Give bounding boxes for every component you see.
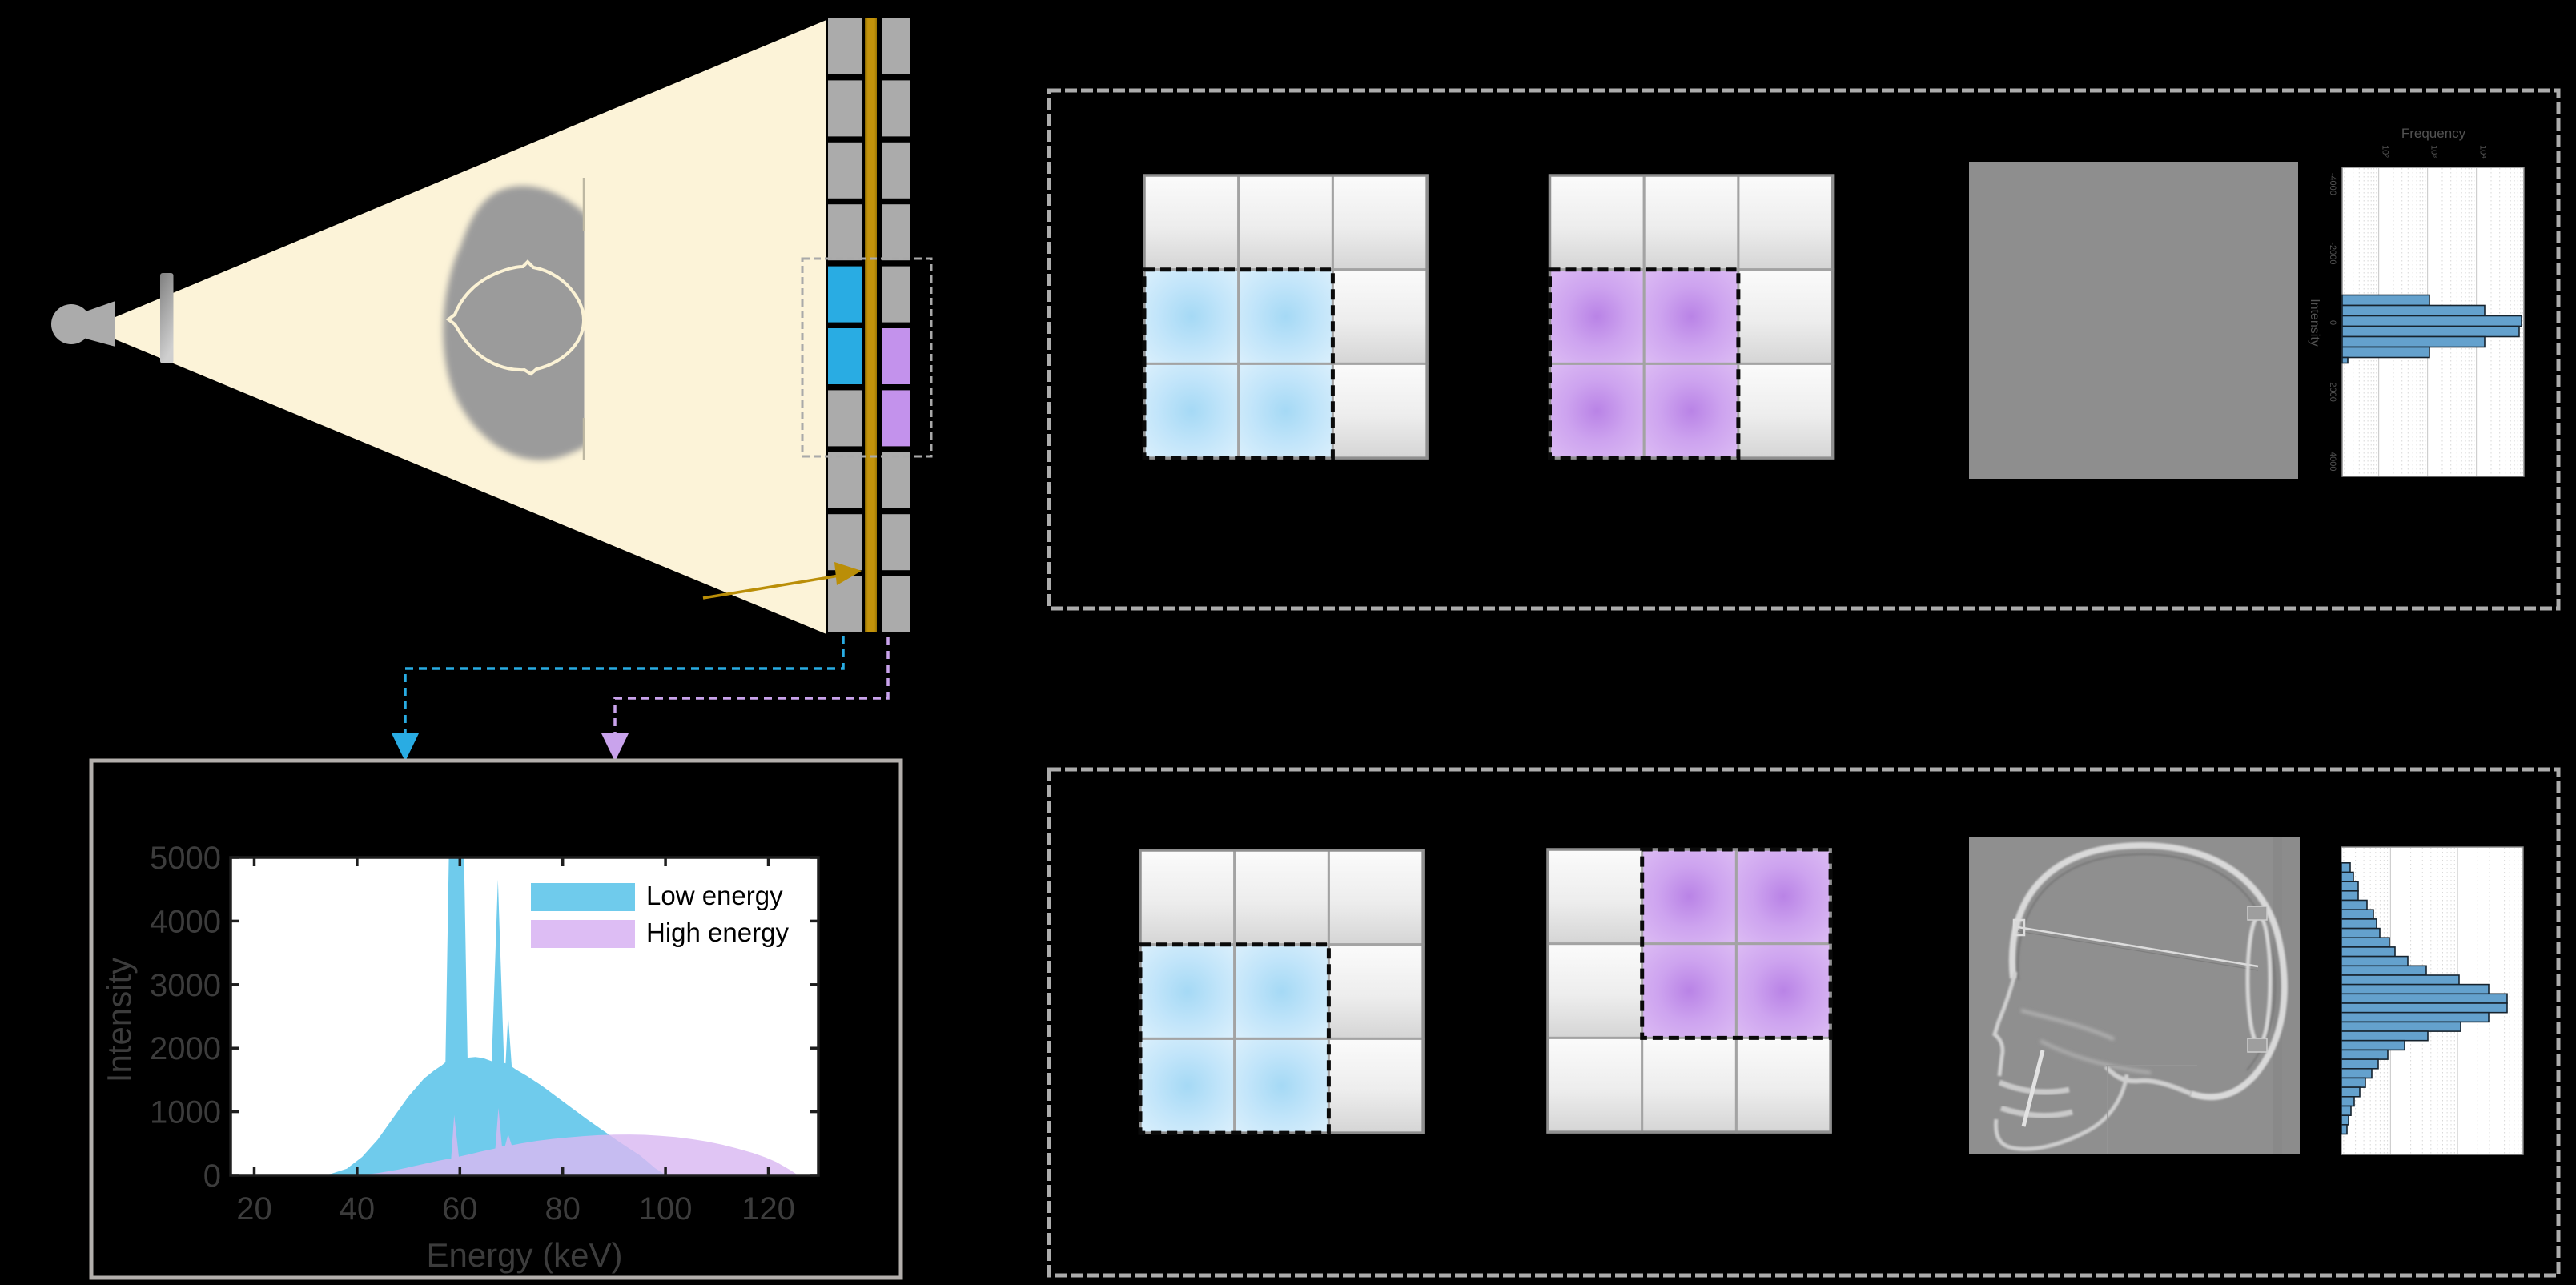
svg-text:60: 60 — [442, 1191, 478, 1227]
svg-text:10²: 10² — [2381, 145, 2390, 158]
svg-text:20: 20 — [236, 1191, 272, 1227]
svg-text:2000: 2000 — [2328, 382, 2337, 401]
svg-text:3000: 3000 — [150, 968, 221, 1003]
svg-text:10⁴: 10⁴ — [2478, 145, 2488, 159]
svg-text:-2000: -2000 — [2328, 242, 2337, 264]
svg-text:Energy (keV): Energy (keV) — [426, 1236, 622, 1274]
svg-text:-4000: -4000 — [2328, 173, 2337, 195]
svg-text:5000: 5000 — [150, 841, 221, 876]
svg-text:40: 40 — [340, 1191, 376, 1227]
svg-text:0: 0 — [2328, 320, 2337, 325]
svg-text:100: 100 — [639, 1191, 693, 1227]
svg-text:10³: 10³ — [2429, 145, 2439, 158]
svg-text:2000: 2000 — [150, 1031, 221, 1066]
svg-text:Frequency: Frequency — [2401, 126, 2466, 141]
svg-text:80: 80 — [545, 1191, 581, 1227]
svg-text:1000: 1000 — [150, 1095, 221, 1130]
svg-text:Intensity: Intensity — [2308, 299, 2321, 347]
svg-text:4000: 4000 — [2328, 452, 2337, 471]
svg-text:Intensity: Intensity — [100, 958, 138, 1082]
svg-text:Low energy: Low energy — [646, 881, 783, 910]
svg-text:120: 120 — [741, 1191, 795, 1227]
svg-text:High energy: High energy — [646, 918, 789, 947]
svg-text:0: 0 — [203, 1159, 221, 1194]
svg-text:4000: 4000 — [150, 904, 221, 939]
